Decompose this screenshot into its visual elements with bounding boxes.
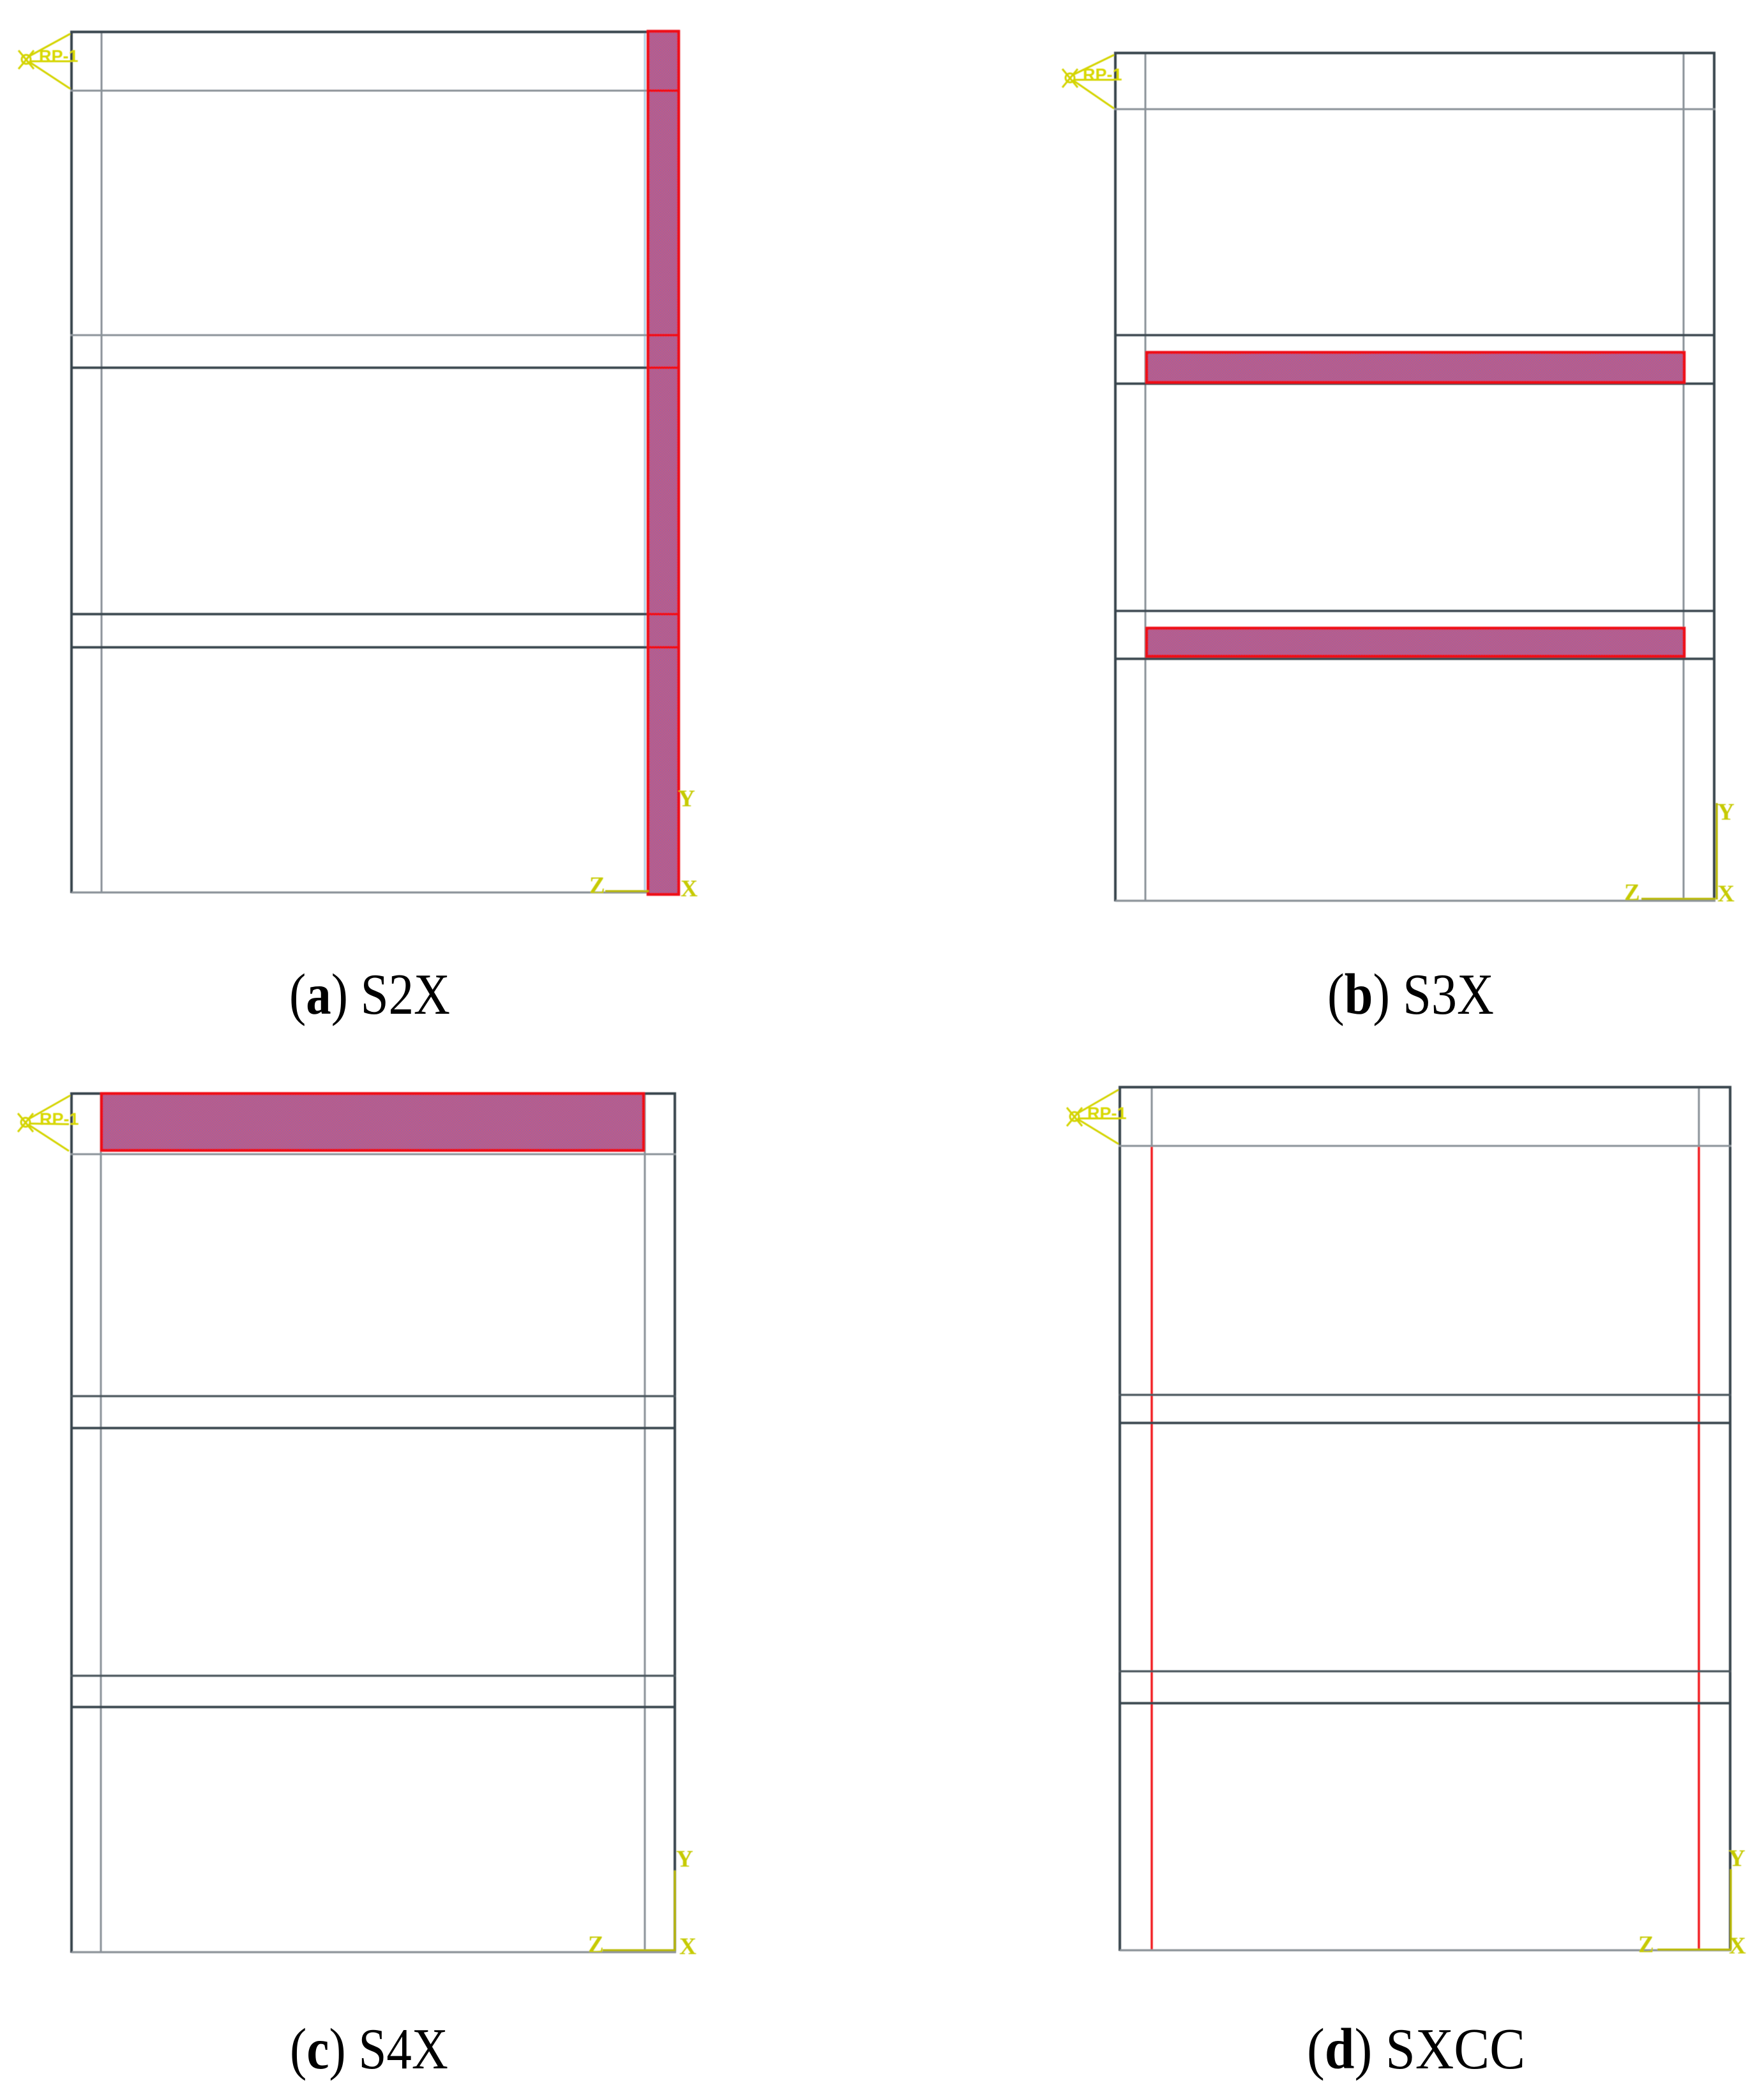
svg-text:X: X [1717,881,1735,907]
svg-text:RP-1: RP-1 [1083,65,1122,84]
svg-text:X: X [679,1934,697,1960]
svg-text:RP-1: RP-1 [1087,1104,1127,1123]
svg-text:Z: Z [1624,880,1640,906]
svg-text:Y: Y [678,786,695,812]
svg-text:Z: Z [1638,1932,1654,1958]
svg-text:Z: Z [589,873,605,899]
svg-text:RP-1: RP-1 [39,47,79,66]
svg-text:Y: Y [676,1846,693,1872]
svg-text:X: X [681,876,698,902]
svg-text:Z: Z [588,1932,604,1958]
svg-text:(c) S4X: (c) S4X [290,2017,448,2081]
svg-text:RP-1: RP-1 [40,1110,79,1129]
svg-text:(a) S2X: (a) S2X [289,962,450,1027]
svg-text:Y: Y [1717,799,1735,825]
svg-text:Y: Y [1728,1846,1745,1872]
svg-text:(d) SXCC: (d) SXCC [1307,2017,1525,2081]
svg-text:(b) S3X: (b) S3X [1327,962,1494,1027]
